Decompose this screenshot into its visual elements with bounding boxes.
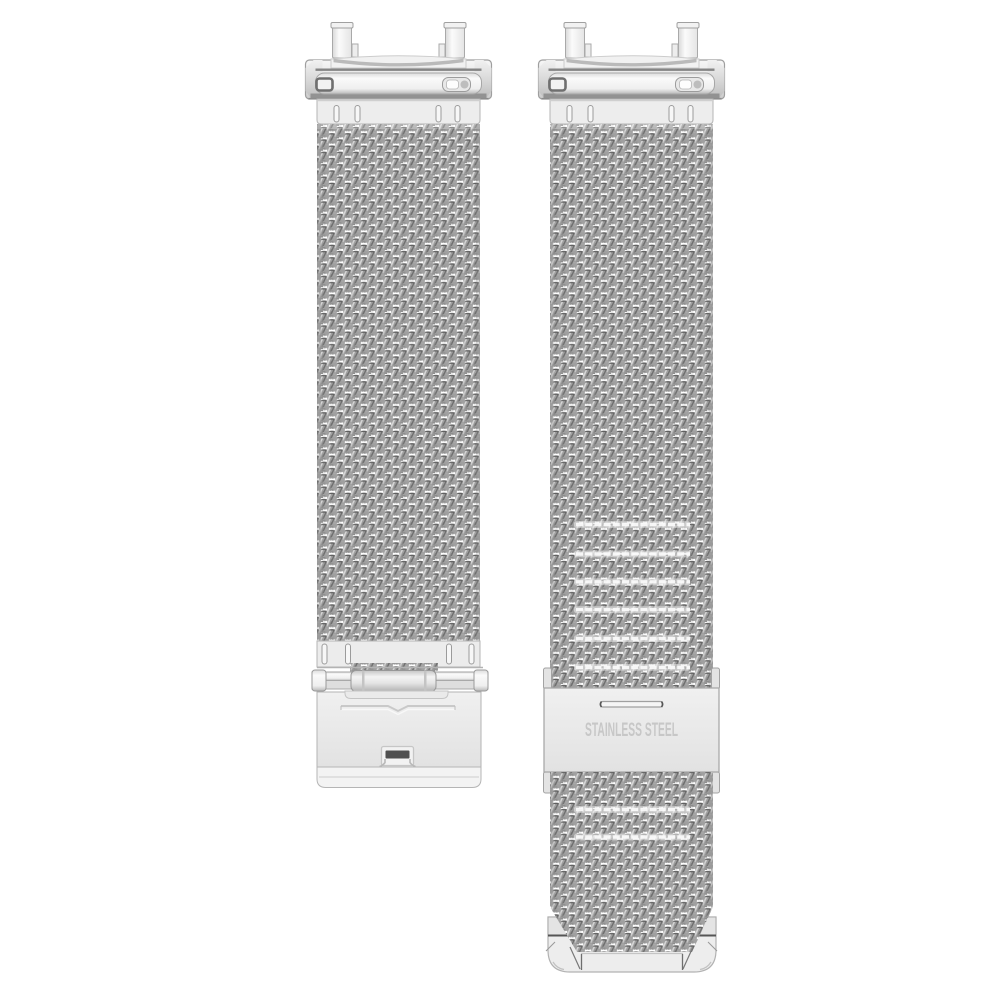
svg-text:STAINLESS STEEL: STAINLESS STEEL [585,720,678,741]
